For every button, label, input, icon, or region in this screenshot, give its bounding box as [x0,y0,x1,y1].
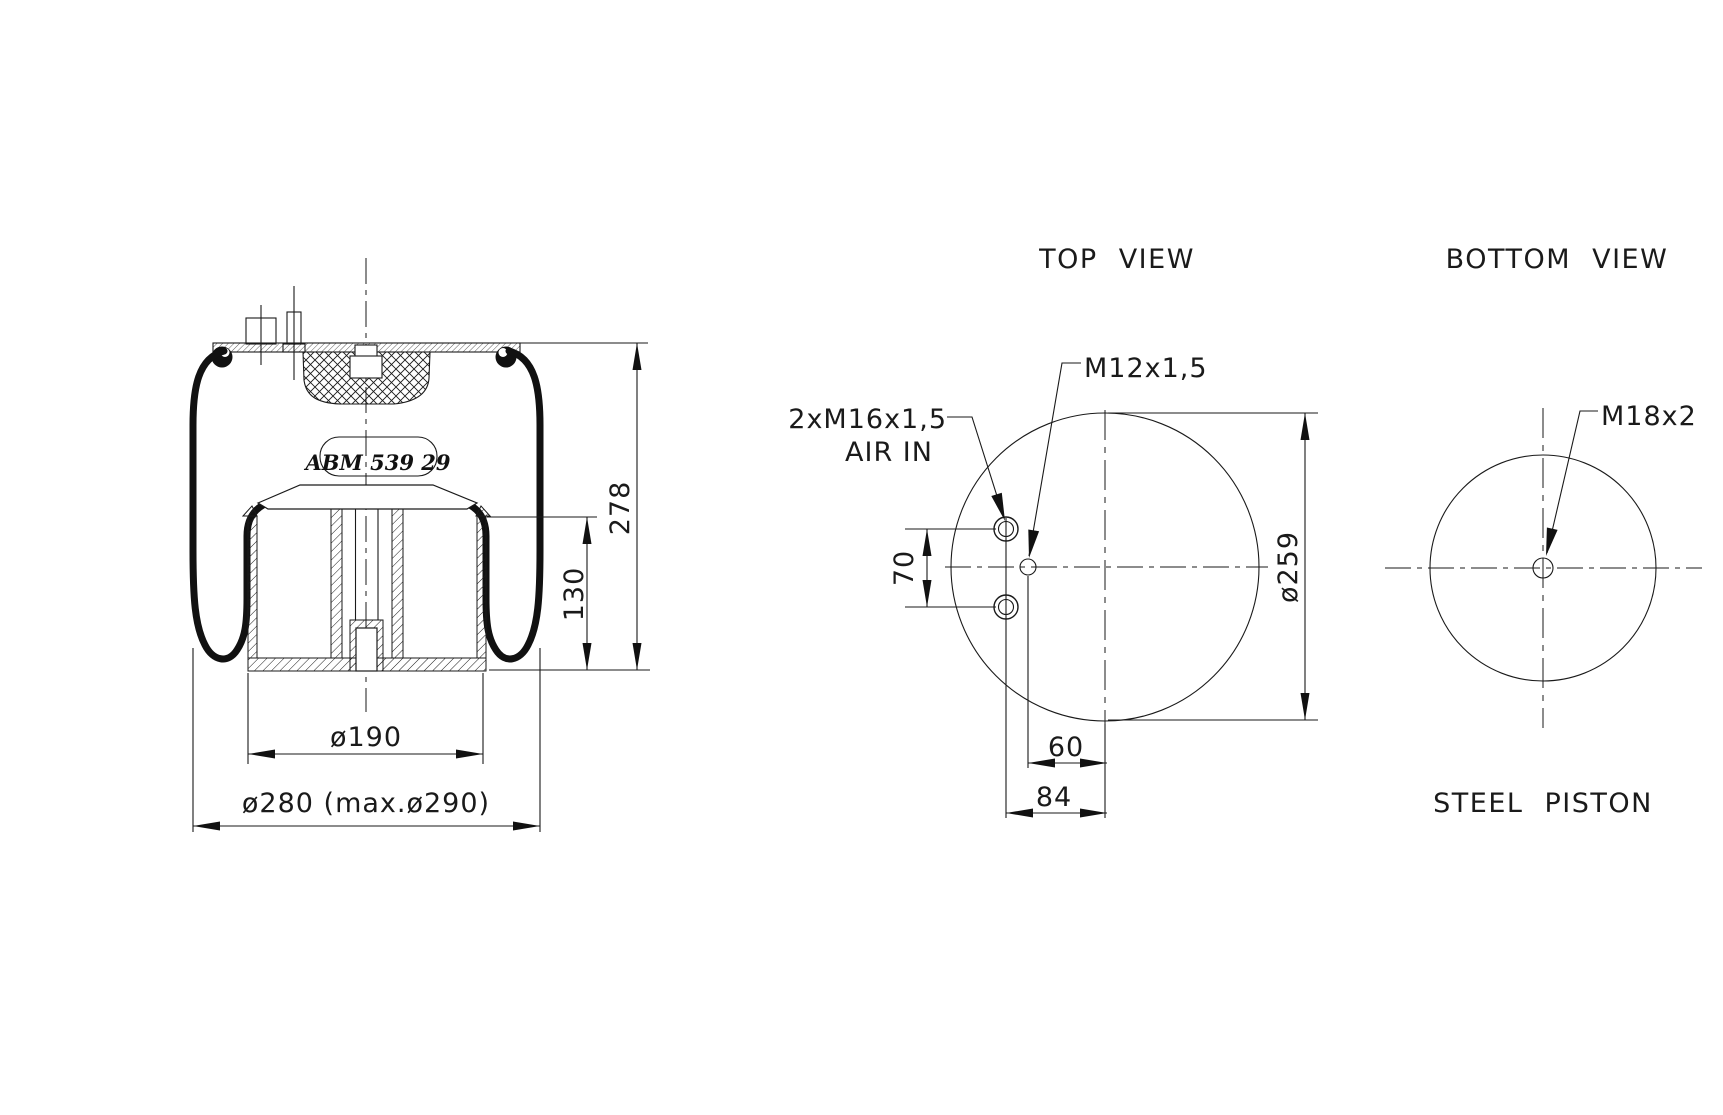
part-number-label: ABM 539 29 [304,450,451,475]
dim-overall-height-label: 278 [605,481,636,536]
air-in-label: AIR IN [845,437,933,468]
piston-outer-wall-left [248,516,257,658]
dim-piston-diameter: ø190 [248,673,483,764]
bottom-view: BOTTOM VIEW M18x2 STEEL PISTON [1385,244,1702,819]
piston-outer-wall-right [477,516,486,658]
piston-thread-bore [356,628,377,671]
piston-top-cone [258,485,477,509]
thread-leader: M18x2 [1546,401,1697,556]
top-plate [213,343,648,352]
dim-stud-offset: 60 [1028,732,1107,768]
dim-plate-diameter-label: ø259 [1273,531,1304,603]
air-ports-leader: 2xM16x1,5 AIR IN [788,404,1005,521]
dim-stud-offset-label: 60 [1048,732,1084,763]
stud-leader: M12x1,5 [1028,353,1207,558]
dim-port-offset-label: 84 [1036,782,1072,813]
side-view: ABM 539 29 130 [193,258,650,832]
dim-port-spacing-label: 70 [889,550,920,586]
dim-piston-height-label: 130 [559,567,590,622]
piston-inner-wall-right [392,509,403,658]
top-stud-left [246,305,276,365]
air-ports-label: 2xM16x1,5 [788,404,947,435]
thread-label: M18x2 [1601,401,1697,432]
bumper-bolt-shank [355,345,377,357]
top-view-title: TOP VIEW [1038,244,1195,275]
dim-port-offset: 84 [1006,782,1107,818]
dim-max-diameter-label: ø280 (max.ø290) [242,788,490,819]
dim-piston-diameter-label: ø190 [330,722,402,753]
piston-inner-wall-left [331,509,342,658]
bottom-view-title: BOTTOM VIEW [1446,244,1669,275]
rubber-bumper [303,345,430,404]
air-spring-drawing: ABM 539 29 130 [0,0,1723,1115]
part-number-plate: ABM 539 29 [304,437,451,476]
air-fitting-stud [283,286,305,380]
steel-piston-caption: STEEL PISTON [1433,788,1653,819]
stud-label: M12x1,5 [1084,353,1208,384]
dim-port-spacing: 70 [889,529,996,607]
bumper-bolt-head [350,356,382,378]
technical-drawing-page: ABM 539 29 130 [0,0,1723,1115]
top-view: TOP VIEW 2xM16x1,5 AIR IN M12x1,5 [788,244,1318,818]
